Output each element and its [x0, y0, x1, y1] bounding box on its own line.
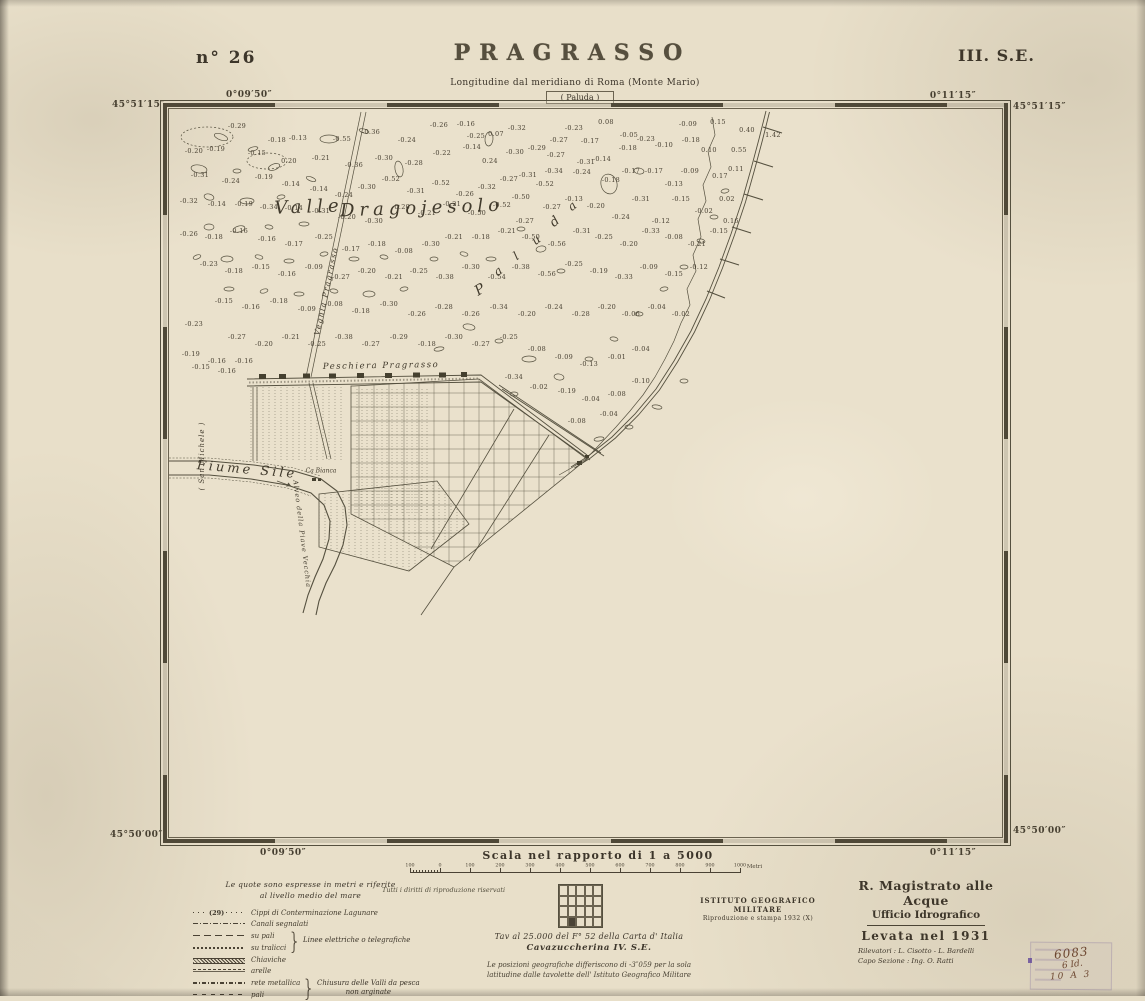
- index-grid-cell: [568, 896, 577, 907]
- spot-value: -0.21: [385, 273, 403, 281]
- map-content: -0.29-0.18-0.13-0.55-0.36-0.24-0.26-0.16…: [169, 109, 1002, 837]
- spot-value: -0.33: [642, 227, 660, 235]
- coord-top-left-lat: 45°51′15″: [112, 100, 158, 110]
- index-grid-cell: [593, 896, 602, 907]
- spot-value: -0.16: [235, 357, 253, 365]
- legend-group-electric: su pali su tralicci } Linee elettriche o…: [193, 929, 428, 953]
- spot-value: -0.24: [545, 303, 563, 311]
- spot-value: -0.30: [380, 300, 398, 308]
- spot-value: -0.14: [463, 143, 481, 151]
- spot-value: -0.25: [595, 233, 613, 241]
- legend: Le quote sono espresse in metri e riferi…: [193, 879, 428, 1000]
- spot-value: -0.28: [435, 303, 453, 311]
- spot-value: -0.04: [600, 410, 618, 418]
- spot-value: -0.22: [433, 149, 451, 157]
- brace-icon: }: [302, 974, 315, 1001]
- spot-value: -0.21: [282, 333, 300, 341]
- spot-value: -0.30: [462, 263, 480, 271]
- spot-value: -0.17: [342, 245, 360, 253]
- spot-value: -0.27: [547, 151, 565, 159]
- spot-value: -0.21: [312, 154, 330, 162]
- legend-label: rete metallica: [251, 979, 300, 987]
- field-strips-south: [319, 479, 469, 571]
- map-label: Peschiera Pragrasso: [323, 360, 439, 372]
- index-grid-cell: [593, 906, 602, 917]
- spot-value: -0.20: [620, 240, 638, 248]
- spot-value: -0.20: [358, 267, 376, 275]
- spot-value: -0.50: [512, 193, 530, 201]
- index-grid-cell: [585, 906, 594, 917]
- spot-value: -0.19: [207, 145, 225, 153]
- map-label: Valle: [274, 195, 344, 218]
- spot-value: -0.15: [710, 227, 728, 235]
- spot-value: -0.18: [682, 136, 700, 144]
- spot-value: -0.55: [333, 135, 351, 143]
- canali-symbol: [193, 921, 245, 927]
- spot-value: -0.24: [222, 177, 240, 185]
- spot-value: -0.27: [500, 175, 518, 183]
- spot-value: -0.38: [512, 263, 530, 271]
- index-grid-current-sheet: [568, 917, 577, 928]
- arelle-symbol: [193, 968, 245, 974]
- spot-value: -0.31: [519, 171, 537, 179]
- spot-value: -0.56: [538, 270, 556, 278]
- divider: [867, 925, 985, 926]
- spot-value: -0.18: [472, 233, 490, 241]
- spot-value: -0.21: [498, 227, 516, 235]
- field-strips-west: [251, 387, 341, 461]
- spot-value: -0.18: [270, 297, 288, 305]
- graticule-band-right: [1004, 103, 1008, 843]
- index-grid-cell: [576, 906, 585, 917]
- spot-value: -0.17: [622, 167, 640, 175]
- legend-label: arelle: [251, 967, 271, 975]
- spot-value: -0.25: [308, 340, 326, 348]
- scale-tick-label: 100: [465, 863, 474, 869]
- index-grid-cell: [568, 885, 577, 896]
- scale-tick: [680, 868, 681, 873]
- legend-label: Chiaviche: [251, 956, 286, 964]
- index-caption-line1: Tav al 25.000 del F° 52 della Carta d' I…: [458, 932, 720, 941]
- spot-value: -0.36: [362, 128, 380, 136]
- spot-value: -0.12: [690, 263, 708, 271]
- section-chief: Capo Sezione : Ing. O. Ratti: [852, 957, 1000, 965]
- coord-bottom-left-lat: 45°50′00″: [110, 830, 156, 840]
- spot-value: -0.14: [593, 155, 611, 163]
- pali-symbol: [193, 992, 245, 998]
- agency-office: Ufficio Idrografico: [852, 909, 1000, 921]
- geo-difference-note: Le posizioni geografiche differiscono di…: [448, 960, 730, 980]
- spot-value: -0.19: [558, 387, 576, 395]
- index-grid-cell: [576, 896, 585, 907]
- spot-value: -0.20: [255, 340, 273, 348]
- spot-value: -0.27: [543, 203, 561, 211]
- map-label: Ca Bianca: [306, 468, 337, 475]
- spot-value: -0.20: [185, 147, 203, 155]
- scale-tick: [500, 868, 501, 873]
- index-grid-cell: [576, 917, 585, 928]
- legend-label: Cippi di Conterminazione Lagunare: [251, 909, 378, 917]
- spot-value: -0.26: [180, 230, 198, 238]
- coord-bottom-right-lon: 0°11′15″: [926, 848, 980, 858]
- scale-title: Scala nel rapporto di 1 a 5000: [398, 849, 798, 862]
- coord-bottom-left-lon: 0°09′50″: [260, 848, 306, 858]
- coord-bottom-right-lat: 45°50′00″: [1013, 826, 1066, 836]
- spot-value: -0.31: [573, 227, 591, 235]
- scale-tick: [530, 868, 531, 873]
- spot-value: -0.24: [573, 168, 591, 176]
- index-grid-cell: [559, 896, 568, 907]
- spot-value: -0.26: [408, 310, 426, 318]
- spot-value: -0.25: [467, 132, 485, 140]
- spot-value: -0.33: [615, 273, 633, 281]
- index-grid-cell: [593, 917, 602, 928]
- spot-value: -0.16: [242, 303, 260, 311]
- index-grid-cell: [585, 885, 594, 896]
- spot-value: -0.18: [602, 176, 620, 184]
- scale-line: [410, 872, 740, 873]
- spot-value: -0.01: [608, 353, 626, 361]
- spot-value: -0.27: [228, 333, 246, 341]
- spot-value: -0.15: [248, 149, 266, 157]
- coord-top-right-lat: 45°51′15″: [1013, 102, 1066, 112]
- spot-value: -0.36: [345, 161, 363, 169]
- scale-tick-label: 500: [585, 863, 594, 869]
- spot-value: -0.27: [472, 340, 490, 348]
- series-code: III. S.E.: [958, 46, 1035, 65]
- brace-icon: }: [288, 927, 301, 955]
- spot-value: -0.10: [632, 377, 650, 385]
- scale: Scala nel rapporto di 1 a 5000 Metri 100…: [398, 849, 798, 877]
- spot-value: -0.25: [500, 333, 518, 341]
- spot-value: 0.02: [719, 195, 735, 203]
- spot-value: -0.23: [637, 135, 655, 143]
- scale-tick-label: 200: [495, 863, 504, 869]
- spot-value: -0.14: [282, 180, 300, 188]
- spot-value: -0.27: [362, 340, 380, 348]
- agency-block: R. Magistrato alle Acque Ufficio Idrogra…: [852, 878, 1000, 965]
- legend-group-label: Chiusura delle Valli da pesca non argina…: [317, 979, 420, 996]
- spot-value: -0.29: [390, 333, 408, 341]
- spot-value: -0.09: [298, 305, 316, 313]
- spot-value: -0.10: [655, 141, 673, 149]
- spot-value: -0.29: [228, 122, 246, 130]
- map-label: ( San Michele ): [198, 422, 206, 491]
- spot-value: -0.08: [395, 247, 413, 255]
- spot-value: -0.23: [200, 260, 218, 268]
- spot-value: -0.15: [665, 270, 683, 278]
- spot-value: 0.11: [728, 165, 744, 173]
- index-grid-cell: [585, 896, 594, 907]
- spot-value: -0.19: [182, 350, 200, 358]
- spot-value: -0.18: [225, 267, 243, 275]
- spot-value: -0.04: [582, 395, 600, 403]
- spot-value: -0.09: [640, 263, 658, 271]
- su-pali-symbol: [193, 933, 245, 939]
- scale-unit: Metri: [747, 863, 762, 869]
- meridian-note: Longitudine dal meridiano di Roma (Monte…: [0, 78, 1145, 88]
- spot-value: -0.02: [672, 310, 690, 318]
- spot-value: -0.21: [445, 233, 463, 241]
- spot-value: -0.30: [375, 154, 393, 162]
- spot-value: -0.27: [332, 273, 350, 281]
- spot-value: 0.08: [598, 118, 614, 126]
- spot-value: -0.23: [185, 320, 203, 328]
- chiaviche-symbol: [193, 957, 245, 963]
- spot-value: -0.20: [598, 303, 616, 311]
- rights-note: Tutti i diritti di riproduzione riservat…: [382, 886, 505, 894]
- spot-value: -0.38: [335, 333, 353, 341]
- spot-value: -0.25: [410, 267, 428, 275]
- spot-value: -0.16: [218, 367, 236, 375]
- spot-value: -0.34: [490, 303, 508, 311]
- spot-value: -0.31: [632, 195, 650, 203]
- map-frame: -0.29-0.18-0.13-0.55-0.36-0.24-0.26-0.16…: [160, 100, 1011, 846]
- spot-value: 0.15: [710, 118, 726, 126]
- spot-value: -0.12: [652, 217, 670, 225]
- spot-value: -0.14: [208, 200, 226, 208]
- legend-label: pali: [251, 991, 264, 999]
- spot-value: -0.32: [180, 197, 198, 205]
- spot-value: -0.04: [632, 345, 650, 353]
- legend-label: su tralicci: [251, 944, 286, 952]
- graticule-band-left: [163, 103, 167, 843]
- spot-value: -0.26: [430, 121, 448, 129]
- spot-value: -0.04: [648, 303, 666, 311]
- survey-year: Levata nel 1931: [852, 929, 1000, 943]
- spot-value: -0.08: [528, 345, 546, 353]
- spot-value: -0.05: [620, 131, 638, 139]
- spot-value: -0.18: [268, 136, 286, 144]
- spot-value: -0.14: [310, 185, 328, 193]
- spot-value: 0.20: [281, 157, 297, 165]
- legend-group-label: Linee elettriche o telegrafiche: [303, 936, 410, 944]
- spot-value: -0.30: [506, 148, 524, 156]
- spot-value: -0.31: [191, 171, 209, 179]
- scale-tick-label: 800: [675, 863, 684, 869]
- spot-value: -0.15: [672, 195, 690, 203]
- spot-value: 0.17: [712, 172, 728, 180]
- spot-value: -0.02: [530, 383, 548, 391]
- marsh-outline: [181, 127, 233, 147]
- spot-value: -0.27: [550, 136, 568, 144]
- agency-name: R. Magistrato alle Acque: [852, 878, 1000, 908]
- scale-subdivisions: [410, 870, 440, 873]
- spot-value: -0.56: [548, 240, 566, 248]
- spot-value: -0.26: [462, 310, 480, 318]
- spot-value: -0.31: [407, 187, 425, 195]
- coord-top-left-lon: 0°09′50″: [226, 90, 272, 100]
- spot-value: -0.13: [665, 180, 683, 188]
- spot-value: -0.16: [230, 227, 248, 235]
- spot-value: -0.32: [478, 183, 496, 191]
- spot-value: -0.17: [285, 240, 303, 248]
- spot-value: -0.17: [581, 137, 599, 145]
- spot-value: -0.16: [457, 120, 475, 128]
- cippi-number: (29): [209, 909, 224, 917]
- spot-value: -0.19: [255, 173, 273, 181]
- spot-value: -0.20: [518, 310, 536, 318]
- spot-value: -0.28: [572, 310, 590, 318]
- spot-value: 0.16: [723, 217, 739, 225]
- scale-tick-label: 100: [405, 863, 414, 869]
- spot-value: -0.32: [508, 124, 526, 132]
- scale-tick: [620, 868, 621, 873]
- spot-value: -0.08: [608, 390, 626, 398]
- fish-farm-grid: [349, 377, 589, 571]
- spot-value: -0.19: [235, 200, 253, 208]
- spot-value: -0.15: [252, 263, 270, 271]
- legend-item-chiaviche: Chiaviche: [193, 955, 428, 964]
- scale-tick: [440, 868, 441, 873]
- spot-value: -0.16: [208, 357, 226, 365]
- spot-value: -0.18: [418, 340, 436, 348]
- river-fiume-sile: [169, 458, 347, 615]
- scale-tick-label: 1000: [734, 863, 746, 869]
- scale-tick: [470, 868, 471, 873]
- graticule-band-bottom: [163, 839, 1008, 843]
- spot-value: -0.30: [445, 333, 463, 341]
- spot-value: -0.17: [645, 167, 663, 175]
- spot-value: -0.13: [289, 134, 307, 142]
- spot-value: -0.08: [568, 417, 586, 425]
- scale-tick-label: 700: [645, 863, 654, 869]
- igm-line2: Riproduzione e stampa 1932 (X): [678, 915, 838, 922]
- spot-value: 0.24: [482, 157, 498, 165]
- index-grid-cell: [576, 885, 585, 896]
- index-grid-cell: [585, 917, 594, 928]
- spot-value: -0.18: [205, 233, 223, 241]
- spot-value: 1.42: [765, 131, 781, 139]
- index-grid-cell: [559, 917, 568, 928]
- spot-value: -0.16: [258, 235, 276, 243]
- spot-value: -0.30: [358, 183, 376, 191]
- igm-imprint: ISTITUTO GEOGRAFICO MILITARE Riproduzion…: [678, 896, 838, 922]
- spot-value: -0.30: [422, 240, 440, 248]
- spot-value: -0.18: [619, 144, 637, 152]
- index-grid-diagram: [558, 884, 603, 928]
- spot-value: -0.29: [528, 144, 546, 152]
- ink-mark: [1028, 958, 1032, 963]
- scale-tick: [590, 868, 591, 873]
- spot-value: -0.24: [612, 213, 630, 221]
- index-grid-cell: [568, 906, 577, 917]
- spot-value: -0.08: [665, 233, 683, 241]
- surveyors: Rilevatori : L. Cisotto - L. Bardelli: [852, 947, 1000, 955]
- spot-value: -0.19: [590, 267, 608, 275]
- spot-value: -0.02: [695, 207, 713, 215]
- index-caption-line2: Cavazuccherina IV. S.E.: [458, 943, 720, 953]
- scale-tick: [410, 868, 411, 873]
- spot-value: -0.25: [565, 260, 583, 268]
- scale-tick-label: 400: [555, 863, 564, 869]
- scale-tick-label: 600: [615, 863, 624, 869]
- su-tralicci-symbol: [193, 945, 245, 951]
- cippi-symbol: (29): [193, 910, 245, 916]
- igm-line1: ISTITUTO GEOGRAFICO MILITARE: [678, 896, 838, 914]
- spot-value: -0.34: [505, 373, 523, 381]
- spot-value: -0.09: [679, 120, 697, 128]
- spot-value: -0.52: [382, 175, 400, 183]
- spot-value: -0.21: [688, 240, 706, 248]
- spot-value: -0.09: [555, 353, 573, 361]
- spot-value: 0.55: [731, 146, 747, 154]
- spot-value: -0.18: [352, 307, 370, 315]
- spot-value: -0.34: [545, 167, 563, 175]
- scale-tick-label: 900: [705, 863, 714, 869]
- spot-value: -0.24: [398, 136, 416, 144]
- index-grid-cell: [559, 906, 568, 917]
- spot-value: -0.25: [315, 233, 333, 241]
- spot-value: 0.40: [739, 126, 755, 134]
- graticule-band-top: [163, 103, 1008, 107]
- scale-tick: [710, 868, 711, 873]
- spot-value: -0.38: [436, 273, 454, 281]
- spot-value: -0.23: [565, 124, 583, 132]
- index-grid-cell: [593, 885, 602, 896]
- spot-value: -0.06: [622, 310, 640, 318]
- spot-value: 0.10: [701, 146, 717, 154]
- rete-metallica-symbol: [193, 980, 245, 986]
- spot-value: -0.15: [215, 297, 233, 305]
- spot-value: -0.52: [536, 180, 554, 188]
- legend-item-canali: Canali segnalati: [193, 920, 428, 929]
- legend-item-cippi: (29) Cippi di Conterminazione Lagunare: [193, 908, 428, 917]
- spot-value: -0.20: [587, 202, 605, 210]
- spot-value: -0.09: [305, 263, 323, 271]
- spot-value: -0.16: [278, 270, 296, 278]
- spot-value: -0.27: [516, 217, 534, 225]
- scale-tick-label: 0: [438, 863, 441, 869]
- scale-tick-label: 300: [525, 863, 534, 869]
- field-boundaries: [319, 379, 587, 615]
- spot-value: -0.13: [580, 360, 598, 368]
- spot-value: -0.18: [368, 240, 386, 248]
- scale-tick: [740, 868, 741, 873]
- spot-value: -0.52: [432, 179, 450, 187]
- index-grid-cell: [559, 885, 568, 896]
- spot-value: -0.15: [192, 363, 210, 371]
- legend-label: su pali: [251, 932, 274, 940]
- spot-value: 0.07: [488, 130, 504, 138]
- spot-value: -0.09: [681, 167, 699, 175]
- spot-value: -0.28: [405, 159, 423, 167]
- scale-tick: [560, 868, 561, 873]
- scale-tick: [650, 868, 651, 873]
- embankment: [247, 375, 604, 460]
- scale-bar: Metri 1000100200300400500600700800900100…: [398, 863, 798, 877]
